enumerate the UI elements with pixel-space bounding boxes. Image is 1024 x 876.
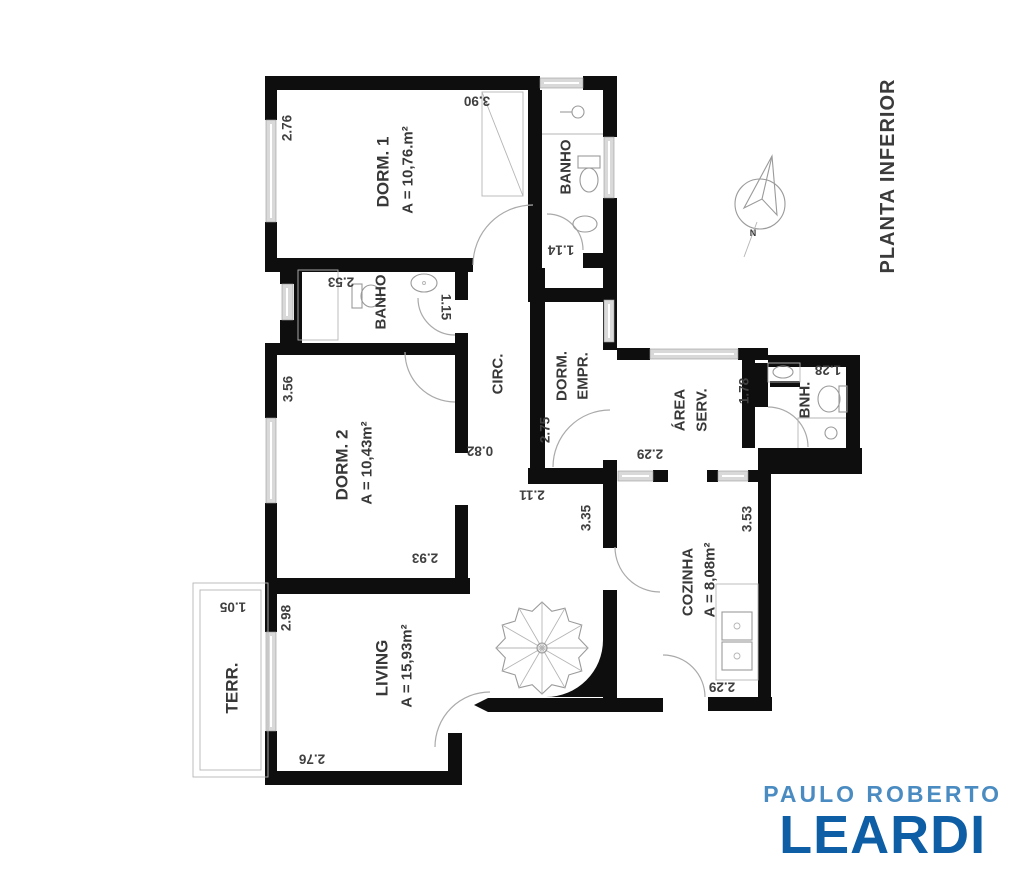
dim-cozinha-bottom: 2.29: [709, 680, 735, 695]
dim-area-serv-width: 2.29: [637, 447, 663, 462]
dim-living-bottom: 2.76: [298, 752, 325, 767]
dim-circ-opening: 0.82: [467, 444, 493, 459]
dim-cozinha-height: 3.53: [740, 505, 755, 532]
toilet-icon: [578, 156, 600, 192]
room-label-cozinha: COZINHA: [680, 548, 697, 616]
page-title: PLANTA INFERIOR: [877, 79, 899, 274]
dim-area-serv-height: 1.78: [737, 377, 752, 404]
dim-living-left: 2.98: [279, 604, 294, 631]
room-label-bnh: BNH.: [797, 382, 814, 419]
room-area-cozinha: A = 8,08m²: [702, 543, 719, 618]
room-label-living: LIVING: [373, 640, 392, 697]
room-label-area-serv-2: SERV.: [694, 388, 711, 431]
dim-bnh-width: 1.28: [814, 363, 841, 378]
room-label-dorm1: DORM. 1: [374, 137, 393, 208]
brand-logo: PAULO ROBERTO LEARDI: [763, 783, 1002, 862]
room-area-dorm1: A = 10,76.m²: [400, 126, 417, 213]
toilet-icon: [818, 386, 847, 412]
room-label-banho1: BANHO: [558, 139, 575, 194]
spiral-staircase: [496, 602, 588, 694]
room-area-dorm2: A = 10,43m²: [359, 421, 376, 504]
dim-dorm1-left: 2.76: [280, 114, 295, 141]
brand-logo-line2: LEARDI: [763, 808, 1002, 862]
sink-icon: [573, 216, 597, 232]
dim-dorm1-top: 3.90: [464, 94, 490, 109]
room-label-area-serv-1: ÁREA: [672, 389, 689, 432]
dim-hall-height: 3.35: [579, 504, 594, 531]
sink-icon: [411, 274, 437, 292]
kitchen-counter: [716, 584, 758, 680]
room-label-terr: TERR.: [223, 663, 242, 714]
dim-banho2-door: 1.15: [439, 294, 454, 321]
room-labels: DORM. 1 A = 10,76.m² DORM. 2 A = 10,43m²…: [223, 79, 900, 714]
floor-plan-drawing: N DORM. 1 A = 10,76.m² DORM. 2 A = 10,43…: [0, 0, 1024, 876]
room-label-dorm-empr-2: EMPR.: [575, 352, 592, 400]
dim-dorm-empr-height: 2.75: [538, 416, 553, 443]
dim-dorm2-bottom: 2.93: [411, 551, 438, 566]
room-label-circ: CIRC.: [490, 354, 507, 395]
dim-banho2-width: 2.53: [327, 275, 354, 290]
dim-terr-top: 1.05: [219, 600, 246, 615]
dim-dorm2-left: 3.56: [281, 375, 296, 402]
compass-icon: N: [735, 156, 785, 257]
floor-plan-page: N DORM. 1 A = 10,76.m² DORM. 2 A = 10,43…: [0, 0, 1024, 876]
dim-hall-top: 2.11: [519, 488, 545, 503]
room-label-banho2: BANHO: [373, 274, 390, 329]
shower-icon: [542, 106, 603, 134]
compass-north-label: N: [750, 228, 757, 238]
room-label-dorm-empr-1: DORM.: [554, 351, 571, 401]
brand-logo-line1: PAULO ROBERTO: [763, 783, 1002, 806]
room-label-dorm2: DORM. 2: [333, 430, 352, 501]
room-area-living: A = 15,93m²: [399, 624, 416, 707]
dim-banho1-door: 1.14: [547, 243, 574, 258]
